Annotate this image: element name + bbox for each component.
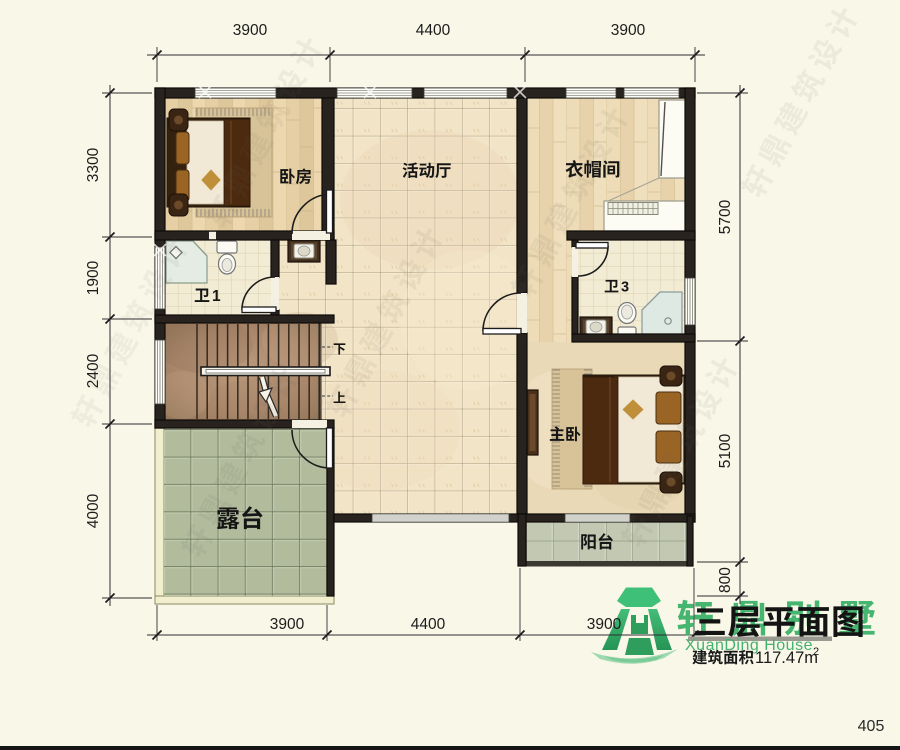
svg-text:117.47m: 117.47m: [755, 649, 818, 667]
svg-text:3900: 3900: [233, 22, 268, 39]
svg-text:1: 1: [212, 288, 221, 305]
svg-text:3900: 3900: [587, 616, 622, 633]
svg-text:3: 3: [621, 280, 629, 296]
svg-text:4400: 4400: [416, 22, 451, 39]
svg-text:3900: 3900: [270, 616, 305, 633]
svg-text:2: 2: [813, 646, 819, 658]
svg-text:4400: 4400: [411, 616, 446, 633]
svg-text:5100: 5100: [717, 433, 734, 468]
svg-text:800: 800: [717, 567, 734, 593]
svg-text:3900: 3900: [611, 22, 646, 39]
svg-text:405: 405: [858, 718, 885, 735]
svg-text:3300: 3300: [85, 147, 102, 182]
svg-text:5700: 5700: [717, 199, 734, 234]
svg-text:1900: 1900: [85, 260, 102, 295]
svg-text:4000: 4000: [85, 493, 102, 528]
